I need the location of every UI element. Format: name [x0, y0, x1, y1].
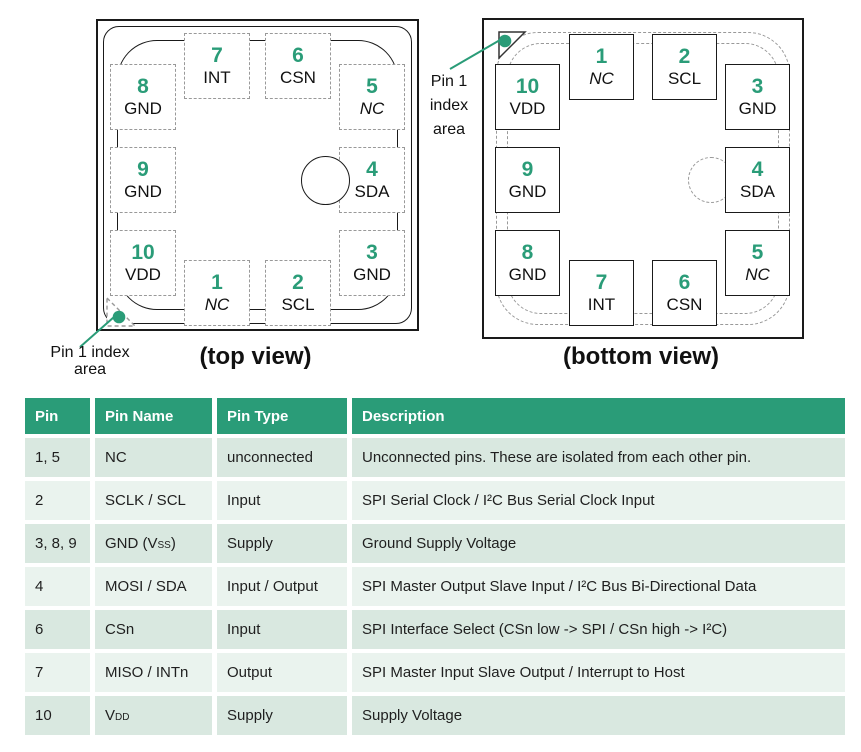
pin-number: 7 — [596, 272, 608, 294]
pin-name-text: MISO / INTn — [105, 664, 188, 681]
pin-label: SCL — [281, 295, 314, 314]
cell-pin-type: Output — [217, 653, 347, 692]
pin-label: GND — [353, 265, 391, 284]
cell-pin: 1, 5 — [25, 438, 90, 477]
pin-label: NC — [205, 295, 230, 314]
cell-description: SPI Master Output Slave Input / I²C Bus … — [352, 567, 845, 606]
pin-8-top: 8 GND — [110, 64, 176, 130]
pin-label: GND — [509, 182, 547, 201]
pin-3-top: 3 GND — [339, 230, 405, 296]
pin-9-bottom: 9 GND — [495, 147, 560, 213]
pin-name-text: CSn — [105, 621, 134, 638]
pin-number: 7 — [211, 45, 223, 67]
cell-pin: 6 — [25, 610, 90, 649]
pin-number: 9 — [522, 159, 534, 181]
pin-number: 8 — [137, 76, 149, 98]
caption-top-view: (top view) — [96, 343, 415, 371]
pin-7-top: 7 INT — [184, 33, 250, 99]
cell-pin-name: VDD — [95, 696, 212, 735]
chip-bottom-view: 1 NC 2 SCL 10 VDD 3 GND 9 GND 4 SDA 8 GN… — [482, 18, 804, 339]
cell-pin-type: Supply — [217, 524, 347, 563]
pin-name-text: SCLK / SCL — [105, 492, 186, 509]
pin1-index-marker-top — [106, 292, 142, 328]
pin-9-top: 9 GND — [110, 147, 176, 213]
pin-description-table: Pin Pin Name Pin Type Description 1, 5 N… — [25, 398, 845, 735]
pin-label: NC — [745, 265, 770, 284]
pin-6-bottom: 6 CSN — [652, 260, 717, 326]
cell-pin-name: MISO / INTn — [95, 653, 212, 692]
pin-label: GND — [124, 182, 162, 201]
cell-pin: 3, 8, 9 — [25, 524, 90, 563]
pin-5-bottom: 5 NC — [725, 230, 790, 296]
col-header-pin-type: Pin Type — [217, 398, 347, 434]
cell-pin-name: MOSI / SDA — [95, 567, 212, 606]
pin-10-bottom: 10 VDD — [495, 64, 560, 130]
pin-label: VDD — [510, 99, 546, 118]
cell-pin-name: SCLK / SCL — [95, 481, 212, 520]
pin-number: 6 — [292, 45, 304, 67]
col-header-description: Description — [352, 398, 845, 434]
chip-top-view: 7 INT 6 CSN 8 GND 5 NC 9 GND 4 SDA 10 VD… — [96, 19, 419, 331]
pin-number: 1 — [596, 46, 608, 68]
pin-number: 4 — [366, 159, 378, 181]
pin-label: CSN — [280, 68, 316, 87]
cell-pin-type: Supply — [217, 696, 347, 735]
pin-label: SCL — [668, 69, 701, 88]
pin-6-top: 6 CSN — [265, 33, 331, 99]
pin-name-text: GND (V — [105, 535, 158, 552]
pin-number: 4 — [752, 159, 764, 181]
cell-pin: 4 — [25, 567, 90, 606]
pin-number: 8 — [522, 242, 534, 264]
pin-name-text: ) — [171, 535, 176, 552]
pin-number: 10 — [131, 242, 154, 264]
pin-number: 9 — [137, 159, 149, 181]
cell-description: SPI Interface Select (CSn low -> SPI / C… — [352, 610, 845, 649]
pin-number: 10 — [516, 76, 539, 98]
cell-pin-name: CSn — [95, 610, 212, 649]
cell-pin-name: GND (VSS) — [95, 524, 212, 563]
pin-number: 5 — [366, 76, 378, 98]
cell-description: SPI Master Input Slave Output / Interrup… — [352, 653, 845, 692]
pin-label: SDA — [355, 182, 390, 201]
pin-label: NC — [360, 99, 385, 118]
pin-name-text: V — [105, 707, 115, 724]
cell-pin-type: Input — [217, 481, 347, 520]
pin-2-bottom: 2 SCL — [652, 34, 717, 100]
pin-5-top: 5 NC — [339, 64, 405, 130]
pin1-index-dot — [499, 35, 512, 48]
pin-number: 6 — [679, 272, 691, 294]
cell-pin: 7 — [25, 653, 90, 692]
cell-pin: 2 — [25, 481, 90, 520]
pin-label: GND — [124, 99, 162, 118]
pinout-figure: 7 INT 6 CSN 8 GND 5 NC 9 GND 4 SDA 10 VD… — [0, 0, 861, 752]
cell-description: Ground Supply Voltage — [352, 524, 845, 563]
pin1-index-marker-bottom — [495, 30, 529, 64]
pin1-index-label-line: index — [419, 94, 479, 118]
pin-4-bottom: 4 SDA — [725, 147, 790, 213]
col-header-pin: Pin — [25, 398, 90, 434]
pin-7-bottom: 7 INT — [569, 260, 634, 326]
col-header-pin-name: Pin Name — [95, 398, 212, 434]
vent-hole-circle — [301, 156, 350, 205]
pin-label: VDD — [125, 265, 161, 284]
cell-pin: 10 — [25, 696, 90, 735]
pin-2-top: 2 SCL — [265, 260, 331, 326]
cell-pin-type: unconnected — [217, 438, 347, 477]
pin1-index-label-bottom: Pin 1 index area — [419, 70, 479, 142]
pin-number: 5 — [752, 242, 764, 264]
cell-description: Supply Voltage — [352, 696, 845, 735]
pin-label: INT — [588, 295, 615, 314]
cell-pin-type: Input — [217, 610, 347, 649]
pin-10-top: 10 VDD — [110, 230, 176, 296]
cell-description: Unconnected pins. These are isolated fro… — [352, 438, 845, 477]
pin-label: GND — [509, 265, 547, 284]
pin1-index-label-line: Pin 1 — [419, 70, 479, 94]
pin-label: SDA — [740, 182, 775, 201]
pin1-index-label-line: area — [419, 118, 479, 142]
cell-description: SPI Serial Clock / I²C Bus Serial Clock … — [352, 481, 845, 520]
pin-name-text: MOSI / SDA — [105, 578, 187, 595]
pin-label: CSN — [667, 295, 703, 314]
pin-number: 3 — [366, 242, 378, 264]
pin-label: INT — [203, 68, 230, 87]
cell-pin-type: Input / Output — [217, 567, 347, 606]
cell-pin-name: NC — [95, 438, 212, 477]
pin-number: 2 — [679, 46, 691, 68]
pin-name-text: NC — [105, 449, 127, 466]
pin-label: GND — [739, 99, 777, 118]
pin-3-bottom: 3 GND — [725, 64, 790, 130]
pin-number: 2 — [292, 272, 304, 294]
pin-8-bottom: 8 GND — [495, 230, 560, 296]
pin1-index-dot — [113, 311, 126, 324]
pin-number: 3 — [752, 76, 764, 98]
pin-number: 1 — [211, 272, 223, 294]
pin-1-top: 1 NC — [184, 260, 250, 326]
pin-label: NC — [589, 69, 614, 88]
pin-1-bottom: 1 NC — [569, 34, 634, 100]
caption-bottom-view: (bottom view) — [482, 343, 800, 371]
